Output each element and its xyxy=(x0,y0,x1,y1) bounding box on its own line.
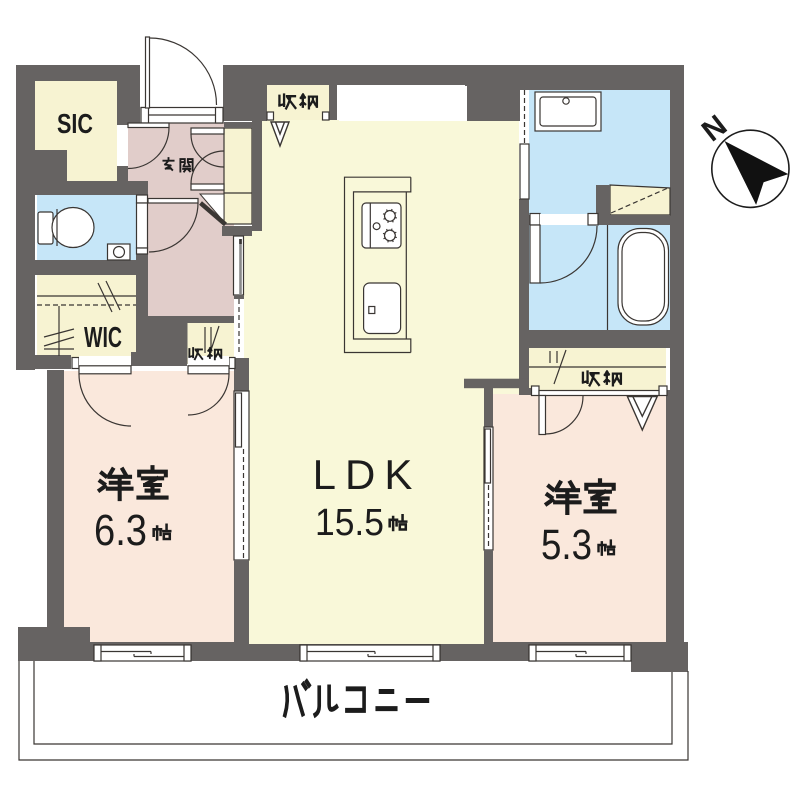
svg-text:LDK: LDK xyxy=(313,451,422,498)
svg-text:6.3: 6.3 xyxy=(94,506,147,555)
svg-text:SIC: SIC xyxy=(57,108,93,139)
svg-text:WIC: WIC xyxy=(84,322,122,354)
svg-text:15.5: 15.5 xyxy=(315,502,384,544)
svg-text:5.3: 5.3 xyxy=(541,521,592,569)
